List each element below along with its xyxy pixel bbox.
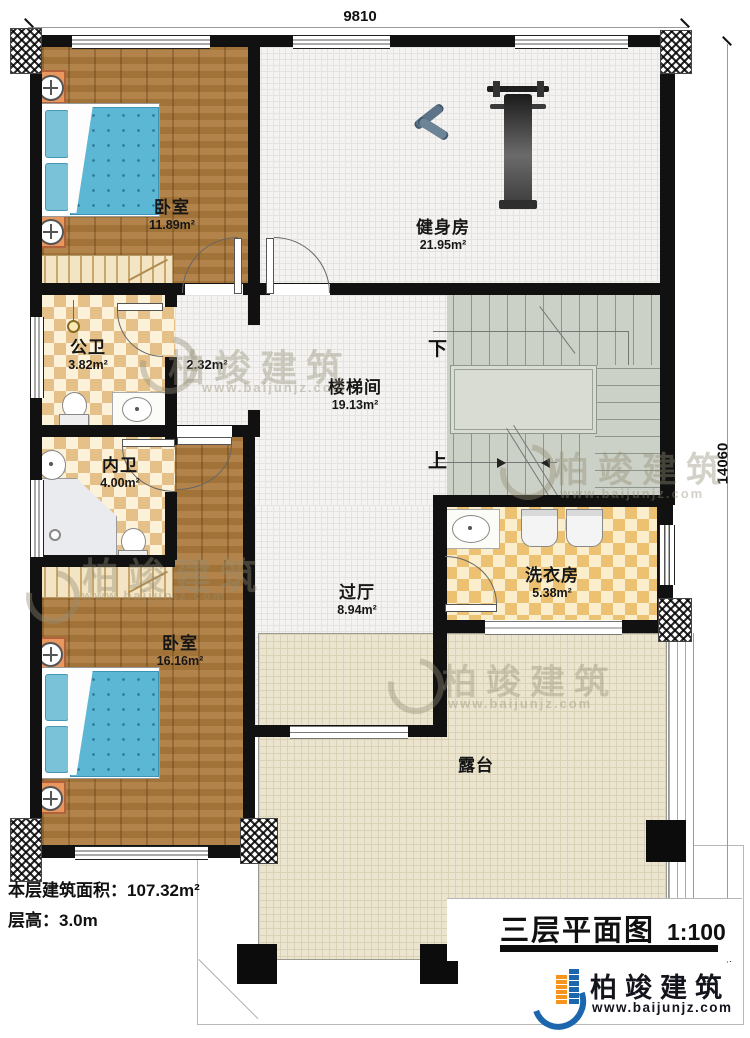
stair-down-label: 下 (428, 334, 447, 361)
laundry-door (445, 604, 497, 612)
wall-laundry-top (433, 495, 668, 507)
wall-public-bath (165, 295, 177, 307)
stair-direction-line (433, 462, 557, 463)
pillow (45, 674, 69, 721)
wall-bedroom2-right (243, 560, 255, 858)
hatch-marker (10, 818, 42, 882)
sliding-door (290, 726, 408, 739)
public-bath-door (117, 303, 163, 311)
brand-logo-icon (556, 974, 567, 1004)
wall-mid-horizontal (30, 283, 675, 295)
room-label-gym: 健身房 21.95m² (383, 218, 503, 252)
washing-machine-icon (566, 509, 603, 547)
hatch-marker (10, 28, 42, 74)
stair-guide-line (433, 331, 628, 332)
sink-icon (452, 515, 490, 543)
sliding-window (485, 621, 622, 635)
room-label-bedroom1: 卧室 11.89m² (112, 198, 232, 232)
window (515, 35, 628, 49)
wall-vestibule-hall (243, 437, 255, 560)
wardrobe-icon (33, 566, 173, 598)
stair-up-label: 上 (428, 446, 447, 473)
wardrobe-icon (33, 255, 173, 285)
barbell-plate (537, 81, 544, 97)
brand-logo: 柏竣建筑 www.baijunjz.com (530, 964, 745, 1026)
room-label-corridor: 2.32m² (172, 358, 242, 373)
dimension-top-value: 9810 (330, 8, 390, 25)
bench-icon (504, 94, 532, 206)
bench-base (499, 200, 537, 209)
vestibule-door-opening (177, 426, 232, 437)
window (659, 525, 675, 585)
barbell-plate (493, 81, 500, 97)
brand-website: www.baijunjz.com (592, 1000, 733, 1015)
window (72, 35, 210, 49)
bedroom2-door (177, 437, 232, 445)
plan-title: 三层平面图 (500, 907, 655, 949)
wall-left (30, 35, 42, 858)
wall-bedroom1-gym (248, 35, 260, 295)
gym-door (266, 238, 274, 294)
title-underline (500, 945, 718, 952)
wall-ensuite-bottom (30, 555, 175, 567)
room-label-ensuite-bath: 内卫 4.00m² (60, 456, 180, 490)
stair-guide-line (628, 331, 629, 365)
pillow (45, 726, 69, 773)
pillow (45, 163, 69, 211)
wall-laundry-left (433, 495, 445, 555)
plan-scale: 1:100 (667, 919, 726, 946)
room-label-public-bath: 公卫 3.82m² (38, 338, 138, 372)
floor-plan: 下 上 (0, 0, 750, 1038)
room-label-bedroom2: 卧室 16.16m² (120, 634, 240, 668)
wall-corridor (248, 295, 260, 325)
window (75, 846, 208, 860)
hatch-marker (658, 598, 692, 642)
ensuite-bath-door (122, 439, 175, 447)
stair-arrow (541, 458, 550, 468)
column (237, 944, 277, 984)
wall-ensuite (165, 492, 177, 560)
column (646, 820, 686, 862)
stair-arrow (497, 458, 506, 468)
sink-icon (122, 397, 152, 422)
window (293, 35, 390, 49)
window (30, 480, 44, 557)
stair-landing (450, 365, 597, 434)
pillow (45, 110, 69, 158)
dimension-line-top (28, 27, 688, 28)
room-label-terrace: 露台 (436, 756, 516, 776)
room-label-stairwell: 楼梯间 19.13m² (295, 378, 415, 412)
room-label-laundry: 洗衣房 5.38m² (492, 566, 612, 600)
washing-machine-icon (521, 509, 558, 547)
dimension-right-value: 14060 (715, 434, 732, 494)
dimension-line-right (727, 44, 728, 963)
hatch-marker (660, 30, 692, 74)
brand-logo-icon (569, 968, 579, 1004)
stair-treads-right (595, 365, 663, 505)
floor-height-text: 层高：3.0m (8, 906, 98, 931)
wall-laundry-bottom (433, 620, 485, 633)
room-label-hall: 过厅 8.94m² (297, 583, 417, 617)
wall-right (660, 35, 675, 505)
floor-area-text: 本层建筑面积：107.32m² (8, 876, 200, 901)
bedroom1-door (234, 238, 242, 294)
title-banner: 三层平面图 1:100 (447, 898, 742, 961)
hatch-marker (240, 818, 278, 864)
pendant-lamp-icon (73, 300, 74, 322)
pendant-lamp-icon (67, 320, 80, 333)
